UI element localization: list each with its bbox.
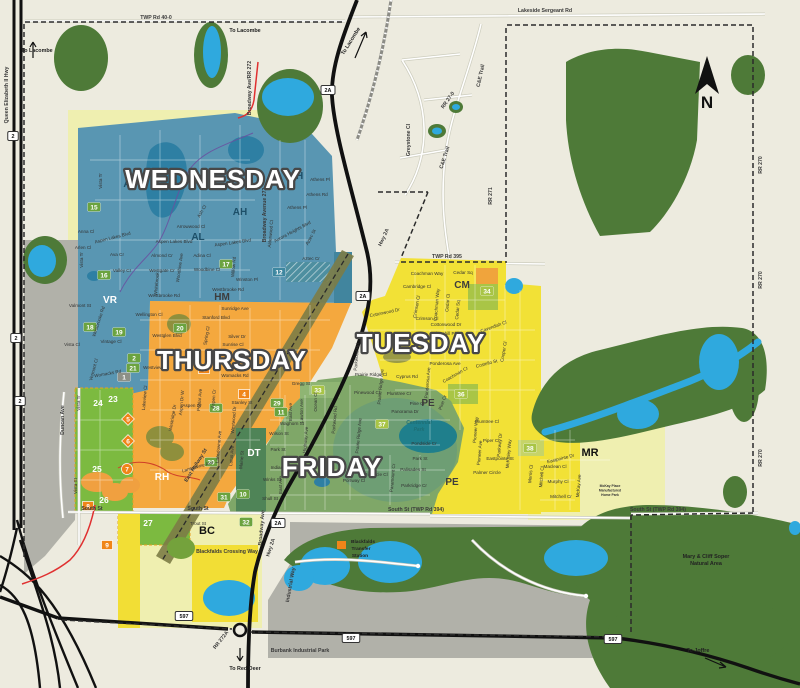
highway-shield: 2 bbox=[8, 132, 19, 141]
highway-shield: 597 bbox=[604, 635, 622, 644]
zone-marker: 23 bbox=[108, 394, 118, 404]
street-label: Parkridge Cr bbox=[401, 483, 427, 488]
area-code-label: DT bbox=[247, 448, 260, 459]
area-code-label: VR bbox=[103, 295, 118, 306]
zone-marker: 26 bbox=[99, 495, 109, 505]
street-label: East Ave bbox=[288, 403, 293, 421]
area-code-label: HM bbox=[214, 292, 230, 303]
street-label: Athens Rd bbox=[306, 192, 328, 197]
road-label: Blackfalds Crossing Way bbox=[196, 549, 258, 555]
poi-label: To Lacombe bbox=[21, 48, 52, 54]
highway-shield: 2 bbox=[11, 334, 22, 343]
street-label: Vista St bbox=[73, 477, 78, 493]
street-label: Adina Cl bbox=[193, 253, 210, 258]
day-zone-label: THURSDAY bbox=[157, 345, 307, 375]
street-label: Wellington Cl bbox=[136, 312, 163, 317]
svg-text:2: 2 bbox=[15, 336, 18, 342]
street-label: Palmer Circle bbox=[473, 470, 501, 475]
highway-shield: 2A bbox=[356, 292, 370, 301]
roundabout bbox=[234, 624, 246, 636]
zone-marker: 27 bbox=[143, 518, 153, 528]
zone-marker: 36 bbox=[455, 390, 468, 399]
zone-marker: 32 bbox=[240, 518, 253, 527]
zone-marker: 12 bbox=[273, 268, 286, 277]
road-label: South St bbox=[81, 506, 103, 512]
svg-text:2A: 2A bbox=[325, 88, 332, 94]
road-label: Burbank Industrial Park bbox=[271, 648, 330, 654]
zone-downtown bbox=[236, 428, 266, 514]
poi-label: Home Park bbox=[601, 493, 619, 497]
street-label: Vista Cl bbox=[64, 342, 80, 347]
highway-shield: 2 bbox=[15, 397, 26, 406]
road-label: Duncan Ave bbox=[60, 405, 66, 435]
svg-text:2: 2 bbox=[12, 134, 15, 140]
street-label: Westgate Cr bbox=[149, 268, 175, 273]
street-label: Cedar Sq bbox=[453, 270, 473, 275]
svg-text:9: 9 bbox=[105, 542, 109, 549]
area-code-label: PE bbox=[445, 477, 459, 488]
zone-marker: 38 bbox=[524, 444, 537, 453]
area-code-label: AH bbox=[233, 207, 247, 218]
poi-label: Centennial bbox=[406, 420, 432, 426]
street-label: Stanford Blvd bbox=[202, 315, 230, 320]
area-code-label: RH bbox=[155, 472, 169, 483]
street-label: Plumtree Cr bbox=[387, 391, 412, 396]
svg-text:1: 1 bbox=[122, 374, 126, 381]
street-label: Plumtree Cl bbox=[475, 419, 499, 424]
day-zone-label: TUESDAY bbox=[357, 328, 486, 358]
road-label: South St bbox=[187, 506, 209, 512]
svg-text:2A: 2A bbox=[275, 521, 282, 527]
svg-text:11: 11 bbox=[278, 409, 285, 416]
zone-marker: 37 bbox=[376, 420, 389, 429]
zone-marker: 11 bbox=[275, 408, 288, 417]
street-label: Palisades St bbox=[400, 467, 426, 472]
svg-text:15: 15 bbox=[90, 204, 98, 211]
street-label: Maclean Cl bbox=[544, 464, 567, 469]
svg-text:597: 597 bbox=[609, 637, 618, 643]
street-label: Vista Tr bbox=[76, 395, 81, 411]
zone-marker: 2 bbox=[128, 354, 141, 363]
street-label: Lawton Ave bbox=[299, 399, 304, 423]
poi-label: Transfer bbox=[352, 546, 371, 552]
poi-label: McKay Place bbox=[600, 484, 621, 488]
street-label: Coachman Way bbox=[411, 271, 444, 276]
street-label: Shull St bbox=[262, 496, 279, 501]
poi-label: Park bbox=[414, 427, 425, 433]
north-label: N bbox=[701, 93, 713, 112]
street-label: Cottonwood Dr bbox=[431, 322, 462, 327]
street-label: Ava Cr bbox=[110, 252, 124, 257]
street-label: Park St bbox=[412, 456, 428, 461]
road-label: Queen Elizabeth II Hwy bbox=[4, 66, 10, 123]
svg-text:7: 7 bbox=[125, 466, 129, 473]
poi-label: To Lacombe bbox=[229, 28, 260, 34]
street-label: Athens Pl bbox=[310, 177, 330, 182]
street-label: Valmont St bbox=[69, 303, 92, 308]
zone-marker: 4 bbox=[239, 390, 250, 399]
street-label: Pondside Cr bbox=[411, 441, 437, 446]
road-label: RR 270 bbox=[758, 156, 764, 174]
street-label: Waghorn St bbox=[280, 421, 305, 426]
svg-text:38: 38 bbox=[526, 445, 534, 452]
svg-text:34: 34 bbox=[483, 288, 491, 295]
street-label: Almond Cr bbox=[151, 253, 173, 258]
zone-marker: 15 bbox=[88, 203, 101, 212]
street-label: Westbrooke Rd bbox=[148, 293, 180, 298]
map-canvas: N 15161718192022111228291130311032333436… bbox=[0, 0, 800, 688]
zone-marker: 20 bbox=[174, 324, 187, 333]
street-label: Valley Cr bbox=[113, 268, 132, 273]
street-label: Arlen Cl bbox=[75, 245, 91, 250]
svg-text:4: 4 bbox=[242, 391, 246, 398]
highway-shield: 597 bbox=[342, 634, 360, 643]
svg-text:597: 597 bbox=[347, 636, 356, 642]
svg-text:16: 16 bbox=[100, 272, 108, 279]
svg-text:10: 10 bbox=[239, 491, 247, 498]
street-label: Woodbine Cl bbox=[194, 267, 220, 272]
svg-text:23: 23 bbox=[108, 394, 118, 404]
road-label: Broadway Ave/RR 272 bbox=[247, 61, 253, 116]
street-label: Murphy Cl bbox=[548, 479, 569, 484]
road-label: South St (TWP Rd 394) bbox=[388, 507, 444, 513]
street-label: Athens Pl bbox=[287, 205, 307, 210]
road-label: TWP Rd 40-0 bbox=[140, 15, 172, 21]
zone-marker: 29 bbox=[271, 399, 284, 408]
svg-text:597: 597 bbox=[180, 614, 189, 620]
area-code-label: MR bbox=[581, 447, 598, 459]
svg-text:32: 32 bbox=[242, 519, 250, 526]
svg-text:17: 17 bbox=[222, 261, 230, 268]
poi-label: Natural Area bbox=[690, 561, 723, 567]
svg-text:24: 24 bbox=[93, 398, 103, 408]
svg-text:37: 37 bbox=[378, 421, 386, 428]
day-zone-label: WEDNESDAY bbox=[125, 164, 301, 194]
highway-shield: 2A bbox=[321, 86, 335, 95]
poi-label: Manufactured bbox=[599, 489, 621, 493]
svg-text:6: 6 bbox=[126, 438, 130, 445]
road-label: South St (TWP Rd 394) bbox=[630, 507, 686, 513]
svg-text:31: 31 bbox=[220, 494, 228, 501]
svg-text:20: 20 bbox=[176, 325, 184, 332]
street-label: Vista Tr bbox=[79, 252, 84, 268]
day-zone-label: FRIDAY bbox=[282, 452, 382, 482]
svg-text:2: 2 bbox=[19, 399, 22, 405]
road-label: RR 270 bbox=[758, 449, 764, 467]
street-label: Mitchell Cr bbox=[550, 494, 572, 499]
svg-text:27: 27 bbox=[143, 518, 153, 528]
poi-label: To Red Deer bbox=[229, 666, 261, 672]
road-label: Lakeside Sergeant Rd bbox=[518, 8, 572, 14]
transfer-station-icon bbox=[337, 541, 346, 549]
road-label: RR 270 bbox=[758, 271, 764, 289]
area-code-label: BC bbox=[199, 525, 215, 537]
street-label: Wilson St bbox=[269, 431, 289, 436]
street-label: Sunridge Ave bbox=[221, 306, 249, 311]
zone-marker: 24 bbox=[93, 398, 103, 408]
road-label: Greystone Cl bbox=[406, 123, 412, 156]
svg-text:19: 19 bbox=[115, 329, 123, 336]
road-label: Broadway Avenue 272 bbox=[262, 188, 268, 243]
highway-shield: 597 bbox=[175, 612, 193, 621]
street-label: Ponderosa Ave bbox=[429, 361, 461, 366]
zone-marker: 25 bbox=[92, 464, 102, 474]
svg-text:26: 26 bbox=[99, 495, 109, 505]
street-label: Pinewood Cl bbox=[354, 390, 380, 395]
zone-marker: 16 bbox=[98, 271, 111, 280]
area-code-label: PE bbox=[421, 398, 435, 409]
poi-label: Station bbox=[352, 553, 368, 559]
road-label: TWP Rd 395 bbox=[432, 254, 462, 260]
zone-marker: 9 bbox=[102, 541, 113, 550]
street-label: Westglen Blvd bbox=[152, 333, 182, 338]
street-label: Cambridge Cl bbox=[403, 284, 431, 289]
svg-text:2: 2 bbox=[132, 355, 136, 362]
street-label: Aspen Lakes Blvd bbox=[156, 239, 193, 244]
street-label: Anna Cl bbox=[78, 229, 94, 234]
street-label: Vintage Cl bbox=[100, 339, 121, 344]
street-label: Winston Pl bbox=[236, 277, 258, 282]
svg-text:25: 25 bbox=[92, 464, 102, 474]
poi-label: Mary & Cliff Soper bbox=[683, 554, 731, 560]
zone-marker: 19 bbox=[113, 328, 126, 337]
svg-text:29: 29 bbox=[273, 400, 281, 407]
street-label: Arrowwood Cl bbox=[177, 224, 206, 229]
svg-text:2A: 2A bbox=[360, 294, 367, 300]
zone-marker: 10 bbox=[237, 490, 250, 499]
highway-shield: 2A bbox=[271, 519, 285, 528]
collection-schedule-map: N 15161718192022111228291130311032333436… bbox=[0, 0, 800, 688]
zone-marker: 34 bbox=[481, 287, 494, 296]
street-label: Silver Dr bbox=[228, 334, 246, 339]
road-label: RR 271 bbox=[488, 187, 494, 205]
svg-text:21: 21 bbox=[129, 365, 137, 372]
street-label: Stanley St bbox=[232, 400, 254, 405]
street-label: Aztec Cr bbox=[302, 256, 320, 261]
poi-label: To Joffre bbox=[687, 648, 710, 654]
street-label: Vista Tr bbox=[98, 173, 103, 189]
poi-label: Blackfalds bbox=[351, 539, 375, 545]
zone-marker: 21 bbox=[127, 364, 140, 373]
street-label: Gregg St bbox=[292, 381, 311, 386]
svg-text:36: 36 bbox=[457, 391, 465, 398]
street-label: Panorama Dr bbox=[391, 409, 419, 414]
zone-marker: 31 bbox=[218, 493, 231, 502]
area-code-label: AL bbox=[191, 232, 204, 243]
street-label: Ocean Cl bbox=[313, 392, 318, 411]
zone-marker: 7 bbox=[122, 464, 133, 475]
street-label: Cyprus Rd bbox=[396, 374, 418, 379]
svg-text:5: 5 bbox=[126, 416, 130, 423]
svg-text:12: 12 bbox=[275, 269, 283, 276]
street-label: Crimson Cl bbox=[416, 316, 439, 321]
area-code-label: CM bbox=[454, 280, 470, 291]
